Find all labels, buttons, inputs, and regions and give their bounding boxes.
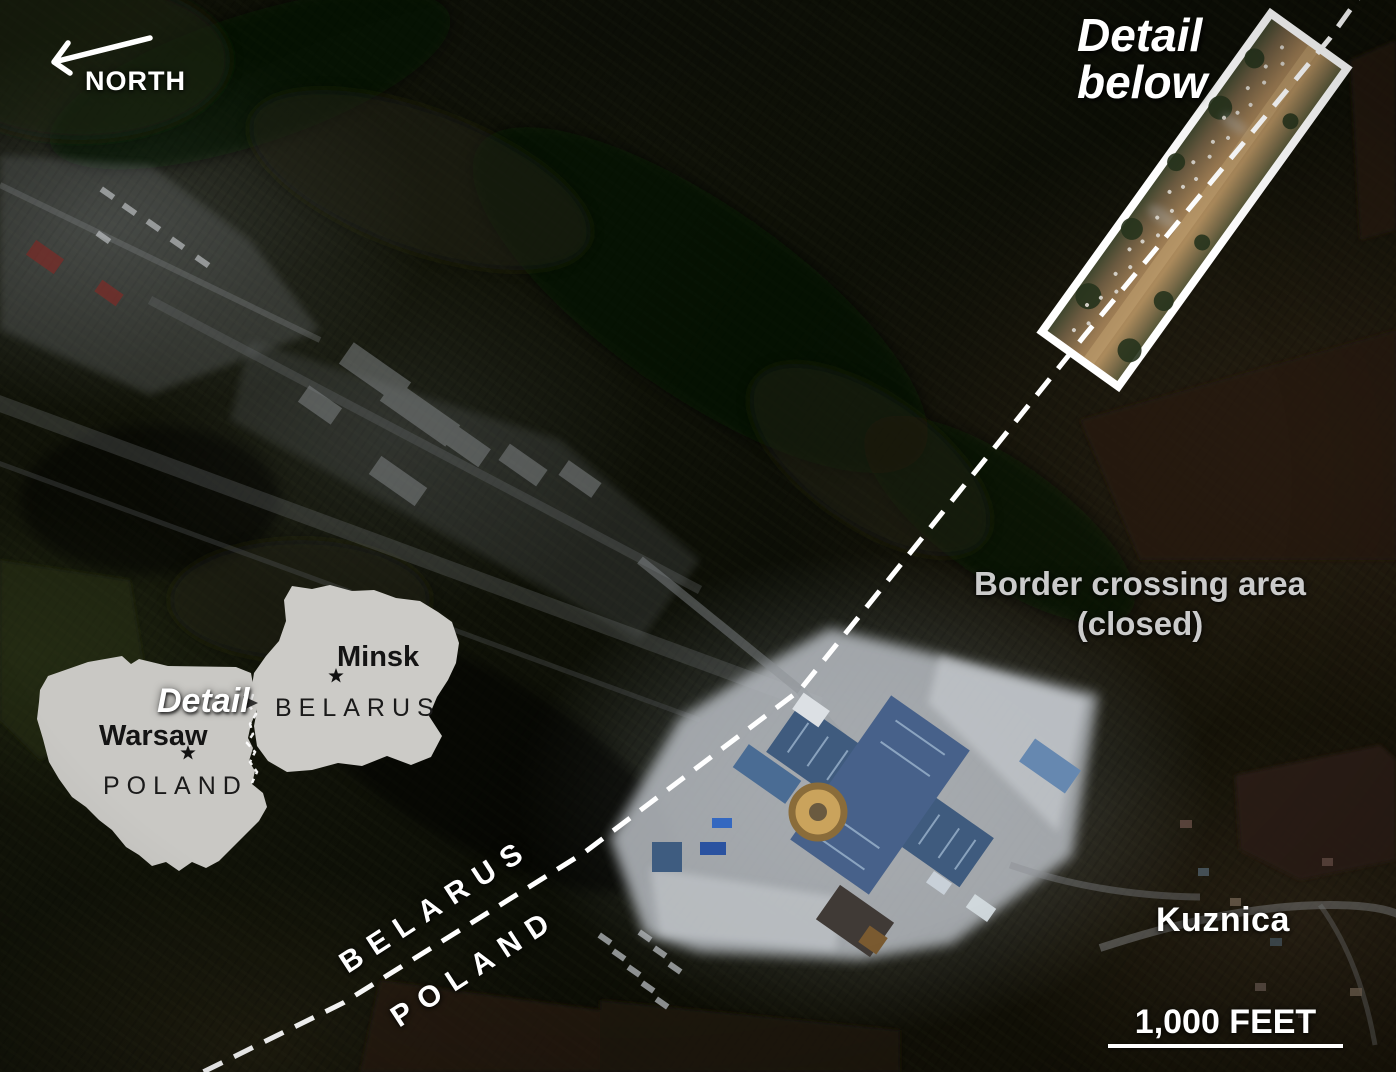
detail-below-line1: Detail (1077, 12, 1207, 59)
inset-warsaw-label: Warsaw (99, 720, 208, 753)
kuznica-label: Kuznica (1156, 901, 1290, 940)
inset-belarus-label: BELARUS (275, 694, 441, 723)
border-crossing-line1: Border crossing area (955, 564, 1325, 604)
border-crossing-line2: (closed) (955, 604, 1325, 644)
detail-below-callout: Detail below (1077, 12, 1207, 106)
scale-bar-line (1108, 1044, 1343, 1048)
north-label: NORTH (85, 66, 186, 97)
satellite-map-graphic: NORTH Detail below Border crossing area … (0, 0, 1396, 1072)
detail-below-line2: below (1077, 59, 1207, 106)
inset-poland-label: POLAND (103, 772, 248, 801)
border-crossing-label: Border crossing area (closed) (955, 564, 1325, 643)
scale-bar-label: 1,000 FEET (1108, 1003, 1343, 1042)
inset-detail-label: Detail (157, 682, 250, 721)
inset-minsk-label: Minsk (337, 641, 419, 674)
